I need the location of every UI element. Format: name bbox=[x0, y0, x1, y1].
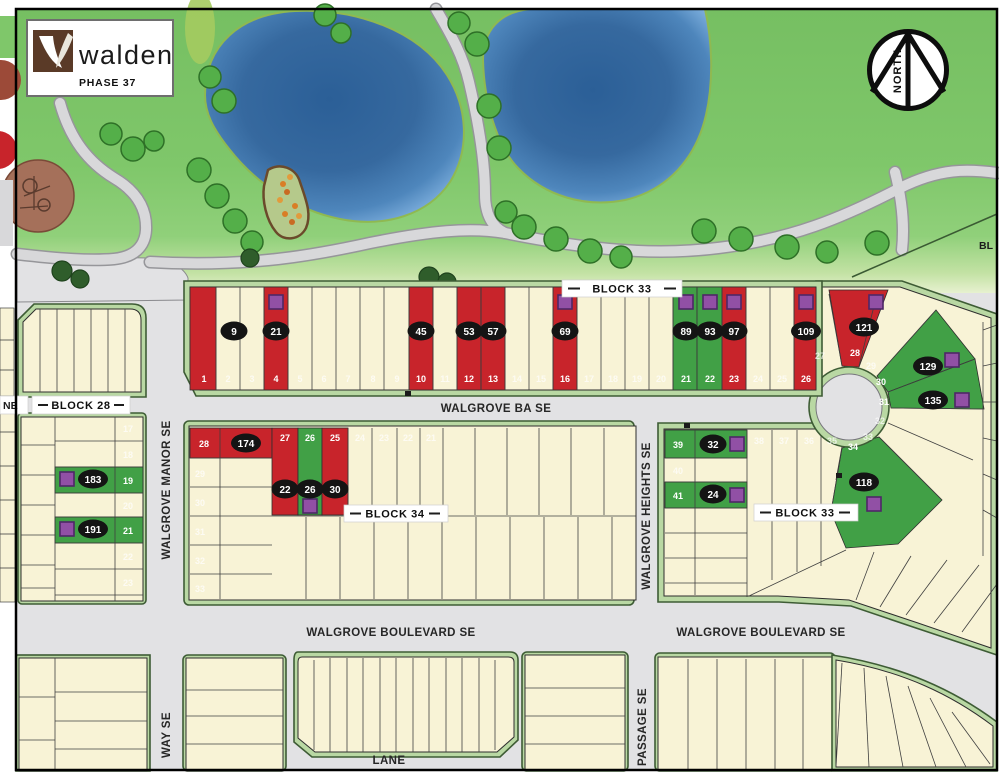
lot-number: 29 bbox=[866, 361, 876, 371]
lot-number: 21 bbox=[426, 433, 436, 443]
lot-address: 183 bbox=[85, 475, 102, 486]
purple-marker-lot30 bbox=[945, 353, 959, 367]
lot-number: 22 bbox=[403, 433, 413, 443]
lot-address: 57 bbox=[487, 327, 499, 338]
lot-number: 6 bbox=[321, 374, 326, 384]
purple-marker-lot31 bbox=[955, 393, 969, 407]
lot-address: 21 bbox=[270, 327, 282, 338]
lot-number: 24 bbox=[753, 374, 763, 384]
purple-marker-lot39 bbox=[730, 437, 744, 451]
lot-address: 30 bbox=[329, 485, 341, 496]
lot-number: 2 bbox=[225, 374, 230, 384]
lot-address: 89 bbox=[680, 327, 692, 338]
lot-number: 28 bbox=[850, 348, 860, 358]
lot-number: 18 bbox=[123, 450, 133, 460]
lot-number: 23 bbox=[123, 578, 133, 588]
block-label-west: BLOCK 28 bbox=[51, 400, 110, 412]
street-label-way: WAY SE bbox=[161, 712, 173, 758]
lot-address: 174 bbox=[238, 439, 255, 450]
lot-number: 22 bbox=[123, 552, 133, 562]
lot-number: 39 bbox=[673, 440, 683, 450]
lot-number: 16 bbox=[560, 374, 570, 384]
block-label-south: BLOCK 33 bbox=[775, 508, 834, 520]
purple-marker-lot4 bbox=[269, 295, 283, 309]
lot-address: 93 bbox=[704, 327, 716, 338]
purple-marker-lot19 bbox=[60, 472, 74, 486]
lot-number: 32 bbox=[195, 556, 205, 566]
lot-number: 12 bbox=[464, 374, 474, 384]
lot-number: 7 bbox=[345, 374, 350, 384]
lot-number: 18 bbox=[608, 374, 618, 384]
lot-address: 129 bbox=[920, 362, 937, 373]
lot-number: 14 bbox=[512, 374, 522, 384]
lot-number: 32 bbox=[875, 416, 885, 426]
lot-address: 191 bbox=[85, 525, 102, 536]
lot-number: 21 bbox=[123, 526, 133, 536]
lot-number: 20 bbox=[123, 501, 133, 511]
lot-number: 21 bbox=[681, 374, 691, 384]
compass-label: NORTH bbox=[892, 49, 904, 93]
lot-number: 23 bbox=[379, 433, 389, 443]
lot-number: 33 bbox=[195, 584, 205, 594]
lot-address: 53 bbox=[463, 327, 475, 338]
lot-address: 97 bbox=[728, 327, 740, 338]
lot-number: 9 bbox=[394, 374, 399, 384]
lot-address: 69 bbox=[559, 327, 571, 338]
site-plan-canvas: BL bbox=[0, 0, 999, 772]
lot-number: 40 bbox=[673, 466, 683, 476]
lot-number: 1 bbox=[201, 374, 206, 384]
lot-number: 27 bbox=[280, 433, 290, 443]
lot-address: 45 bbox=[415, 327, 427, 338]
lot-number: 13 bbox=[488, 374, 498, 384]
lot-number: 35 bbox=[827, 436, 837, 446]
cul-de-sac-road bbox=[816, 374, 882, 440]
walden-logo: walden PHASE 37 bbox=[27, 20, 174, 96]
lot-number: 20 bbox=[656, 374, 666, 384]
block-label-center: BLOCK 34 bbox=[365, 509, 424, 521]
lot-number: 23 bbox=[729, 374, 739, 384]
lot-address: 22 bbox=[279, 485, 291, 496]
phase-label: PHASE 37 bbox=[79, 77, 136, 89]
lot-number: 11 bbox=[440, 374, 450, 384]
street-label-walgrove-blvd-west: WALGROVE BOULEVARD SE bbox=[306, 627, 475, 639]
lot-address: 135 bbox=[925, 396, 942, 407]
purple-marker-lot23 bbox=[727, 295, 741, 309]
lot-number: 37 bbox=[779, 436, 789, 446]
lot-address: 24 bbox=[707, 490, 719, 501]
lot-number: 19 bbox=[632, 374, 642, 384]
lot-address: 26 bbox=[304, 485, 316, 496]
purple-marker-lot34 bbox=[867, 497, 881, 511]
block-label-north: BLOCK 33 bbox=[592, 284, 651, 296]
lot-number: 17 bbox=[584, 374, 594, 384]
lot-address: 118 bbox=[856, 478, 873, 489]
lot-number: 17 bbox=[123, 424, 133, 434]
lot-number: 25 bbox=[777, 374, 787, 384]
lot-number: 27 bbox=[815, 351, 825, 361]
lot-number: 29 bbox=[195, 469, 205, 479]
lot-number: 41 bbox=[673, 491, 683, 501]
lot-number: 34 bbox=[848, 442, 858, 452]
partial-block-label: BL bbox=[979, 240, 994, 252]
purple-marker-lot26b34 bbox=[303, 499, 317, 513]
lot-number: 4 bbox=[273, 374, 278, 384]
lot-address: 121 bbox=[856, 323, 873, 334]
lot-number: 33 bbox=[863, 432, 873, 442]
lot-number: 8 bbox=[370, 374, 375, 384]
north-compass: NORTH bbox=[870, 32, 947, 109]
lot-number: 30 bbox=[876, 377, 886, 387]
street-label-walgrove-blvd-east: WALGROVE BOULEVARD SE bbox=[676, 627, 845, 639]
street-label-passage: PASSAGE SE bbox=[637, 688, 649, 766]
lot-number: 3 bbox=[249, 374, 254, 384]
street-label-walgrove-ba: WALGROVE BA SE bbox=[441, 403, 552, 415]
street-label-lane-south: LANE bbox=[373, 755, 406, 767]
lot-number: 28 bbox=[199, 439, 209, 449]
lot-number: 10 bbox=[416, 374, 426, 384]
lot-number: 25 bbox=[330, 433, 340, 443]
lot-address: 32 bbox=[707, 440, 719, 451]
purple-marker-lot41 bbox=[730, 488, 744, 502]
site-plan-map: BL bbox=[0, 0, 999, 772]
lot-address: 9 bbox=[231, 327, 237, 338]
lot-address: 109 bbox=[798, 327, 815, 338]
lot-number: 19 bbox=[123, 476, 133, 486]
lot-number: 5 bbox=[297, 374, 302, 384]
block28-upper bbox=[18, 304, 146, 397]
street-label-walgrove-heights: WALGROVE HEIGHTS SE bbox=[641, 442, 653, 590]
purple-marker-lot22 bbox=[703, 295, 717, 309]
lot-number: 24 bbox=[355, 433, 365, 443]
lot-number: 31 bbox=[195, 527, 205, 537]
lot-number: 38 bbox=[754, 436, 764, 446]
street-label-walgrove-manor: WALGROVE MANOR SE bbox=[161, 420, 173, 559]
purple-marker-lot28 bbox=[869, 295, 883, 309]
lot-number: 36 bbox=[804, 436, 814, 446]
purple-marker-lot26 bbox=[799, 295, 813, 309]
lot-number: 30 bbox=[195, 498, 205, 508]
lot-number: 31 bbox=[879, 397, 889, 407]
lot-number: 22 bbox=[705, 374, 715, 384]
brand-name: walden bbox=[78, 40, 174, 70]
lot-number: 26 bbox=[305, 433, 315, 443]
lot-number: 15 bbox=[536, 374, 546, 384]
purple-marker-lot21b bbox=[60, 522, 74, 536]
lot-number: 26 bbox=[801, 374, 811, 384]
